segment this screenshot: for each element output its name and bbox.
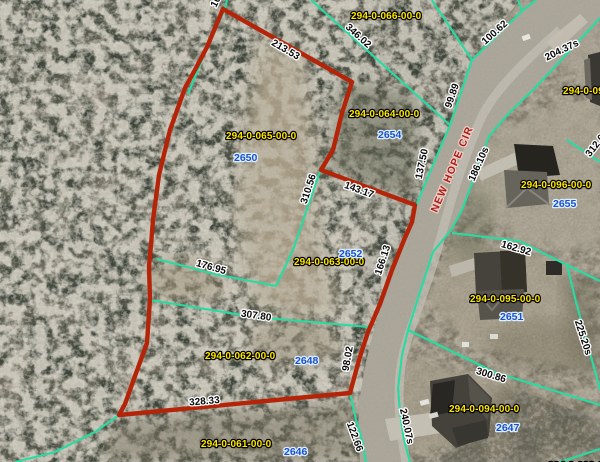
svg-text:294-0-066-00-0: 294-0-066-00-0 [351, 11, 422, 22]
svg-text:294-0-061-00-0: 294-0-061-00-0 [201, 439, 272, 450]
svg-text:2650: 2650 [234, 152, 258, 164]
svg-text:2651: 2651 [500, 311, 524, 323]
svg-text:2654: 2654 [378, 129, 402, 141]
svg-text:2652: 2652 [339, 248, 363, 260]
svg-text:294-0-095-00-0: 294-0-095-00-0 [470, 294, 541, 305]
svg-text:294-0-096-00-0: 294-0-096-00-0 [521, 180, 592, 191]
svg-text:294-0-064-00-0: 294-0-064-00-0 [349, 109, 420, 120]
svg-text:294-0-065-00-0: 294-0-065-00-0 [226, 131, 297, 142]
svg-text:2646: 2646 [284, 446, 308, 458]
svg-text:294-0-097-00-0: 294-0-097-00-0 [563, 86, 600, 97]
svg-text:294-0-062-00-0: 294-0-062-00-0 [205, 351, 276, 362]
svg-text:294-0-094-00-0: 294-0-094-00-0 [449, 404, 520, 415]
svg-text:2647: 2647 [496, 422, 520, 434]
svg-text:2655: 2655 [553, 198, 577, 210]
svg-text:2648: 2648 [295, 355, 319, 367]
